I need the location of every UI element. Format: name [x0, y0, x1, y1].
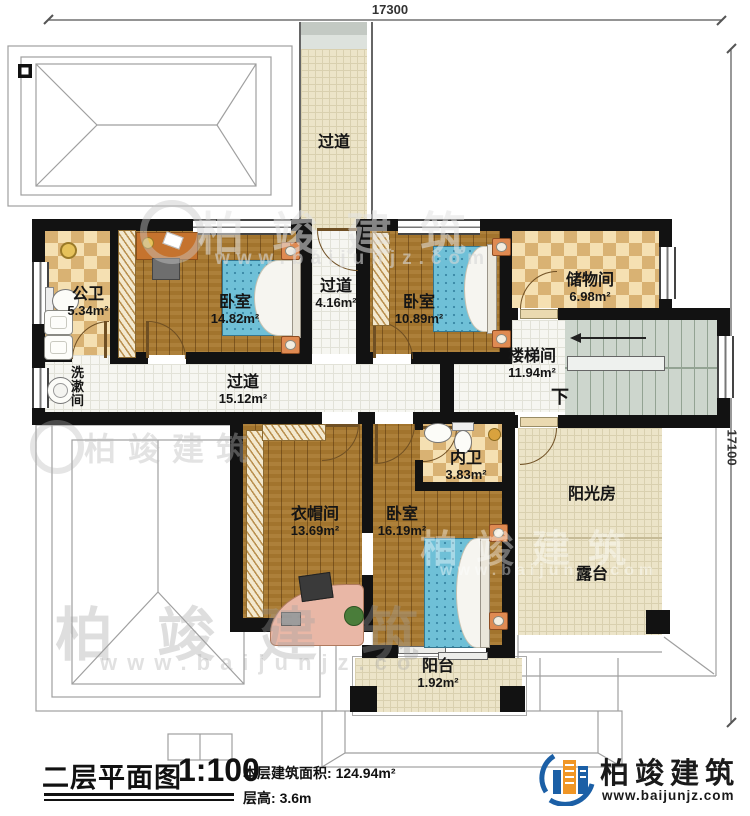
wardrobe [118, 230, 136, 358]
floor-height-label: 层高: [243, 790, 276, 806]
bed-headboard [487, 244, 497, 334]
room-label-sunroom: 阳光房 [554, 486, 630, 504]
bedroom2-door-leaf [373, 321, 376, 358]
storage-door-leaf [520, 309, 558, 319]
nightstand [489, 524, 508, 542]
room-label-storage: 储物间 6.98m² [550, 272, 630, 304]
terrace-pillar [646, 610, 670, 634]
brand-url: www.baijunjz.com [602, 788, 735, 803]
room-label-cloakroom: 衣帽间 13.69m² [268, 506, 362, 538]
nightstand [492, 330, 511, 348]
window [398, 219, 480, 235]
desk-lamp-icon [142, 237, 154, 249]
dimension-right-label: 17100 [725, 418, 740, 478]
sink-basin [53, 383, 68, 398]
upper-left-roof [8, 46, 292, 206]
floor-area-value: 124.94m² [336, 765, 396, 781]
wall [356, 352, 373, 364]
dimension-top-label: 17300 [362, 2, 418, 17]
floor-height-value: 3.6m [280, 790, 312, 806]
balcony-pillar [350, 686, 377, 712]
light-fixture-icon [60, 242, 77, 259]
wall [440, 360, 454, 414]
wardrobe [246, 430, 264, 618]
bedroom3-door-leaf [375, 424, 378, 463]
wall [558, 308, 730, 320]
room-label-stairwell: 楼梯间 11.94m² [480, 348, 584, 380]
title-underline [44, 793, 234, 796]
keyboard [281, 612, 301, 626]
window [193, 219, 291, 235]
stair-down-label: 下 [546, 388, 574, 408]
bath-accessory-icon [488, 428, 501, 441]
wardrobe [262, 424, 326, 441]
window [717, 336, 734, 398]
shower-unit [44, 335, 73, 360]
corridor-door-leaf [317, 228, 357, 231]
room-label-balcony: 阳台 1.92m² [402, 658, 474, 690]
room-label-corridor-main: 过道 15.12m² [203, 374, 283, 406]
cloakroom-door-leaf [322, 424, 358, 427]
wall [243, 412, 322, 424]
corridor-step [301, 35, 367, 49]
corridor-step [301, 22, 367, 35]
sunroom-terrace-divider [518, 537, 662, 539]
plant-icon [344, 606, 364, 626]
room-label-corridor-small: 过道 4.16m² [308, 278, 364, 310]
room-label-bedroom2: 卧室 10.89m² [383, 294, 455, 326]
nightstand [492, 238, 511, 256]
stair-direction-arrow [580, 337, 646, 339]
bath-door-leaf [104, 321, 107, 358]
wall [558, 415, 730, 428]
wall [420, 482, 505, 491]
room-label-washroom: 洗漱间 [69, 366, 86, 408]
room-label-private-bath: 内卫 3.83m² [432, 450, 500, 482]
stair-arrowhead-icon [570, 333, 581, 343]
room-label-corridor-top: 过道 [301, 134, 367, 152]
sink [424, 423, 452, 443]
floor-area-label: 本层建筑面积: [243, 765, 332, 781]
tv-monitor [152, 258, 180, 280]
brand-logo: 柏竣建筑 www.baijunjz.com [538, 746, 750, 810]
bedroom1-door-leaf [146, 321, 149, 358]
nightstand [281, 336, 300, 354]
balcony-pillar [500, 686, 525, 712]
title-underline [44, 799, 234, 801]
room-label-bedroom1: 卧室 14.82m² [182, 294, 288, 326]
wall [230, 412, 243, 632]
wall [32, 412, 243, 425]
brand-logo-icon [538, 748, 596, 806]
room-label-terrace: 露台 [562, 566, 622, 584]
bed-headboard [292, 258, 301, 338]
sunroom-door-leaf [520, 417, 558, 427]
sheet-title: 二层平面图 [42, 756, 182, 795]
floor-area-row: 本层建筑面积: 124.94m² [243, 763, 396, 783]
floor-height-row: 层高: 3.6m [243, 788, 311, 808]
room-label-public-bath: 公卫 5.34m² [56, 286, 120, 318]
wall [415, 424, 423, 430]
room-label-bedroom3: 卧室 16.19m² [360, 506, 444, 538]
bed-headboard [480, 538, 490, 648]
floor-plan-sheet: 柏竣建筑 www.baijunjz.com 柏竣建筑 柏竣建筑 www.baij… [0, 0, 750, 816]
wall [362, 645, 398, 658]
watermark-logo-icon [30, 420, 84, 474]
nightstand [281, 242, 300, 260]
brand-name: 柏竣建筑 [600, 750, 740, 792]
nightstand [489, 612, 508, 630]
top-corridor [299, 22, 373, 230]
window [659, 247, 676, 299]
computer-monitor [298, 572, 333, 602]
